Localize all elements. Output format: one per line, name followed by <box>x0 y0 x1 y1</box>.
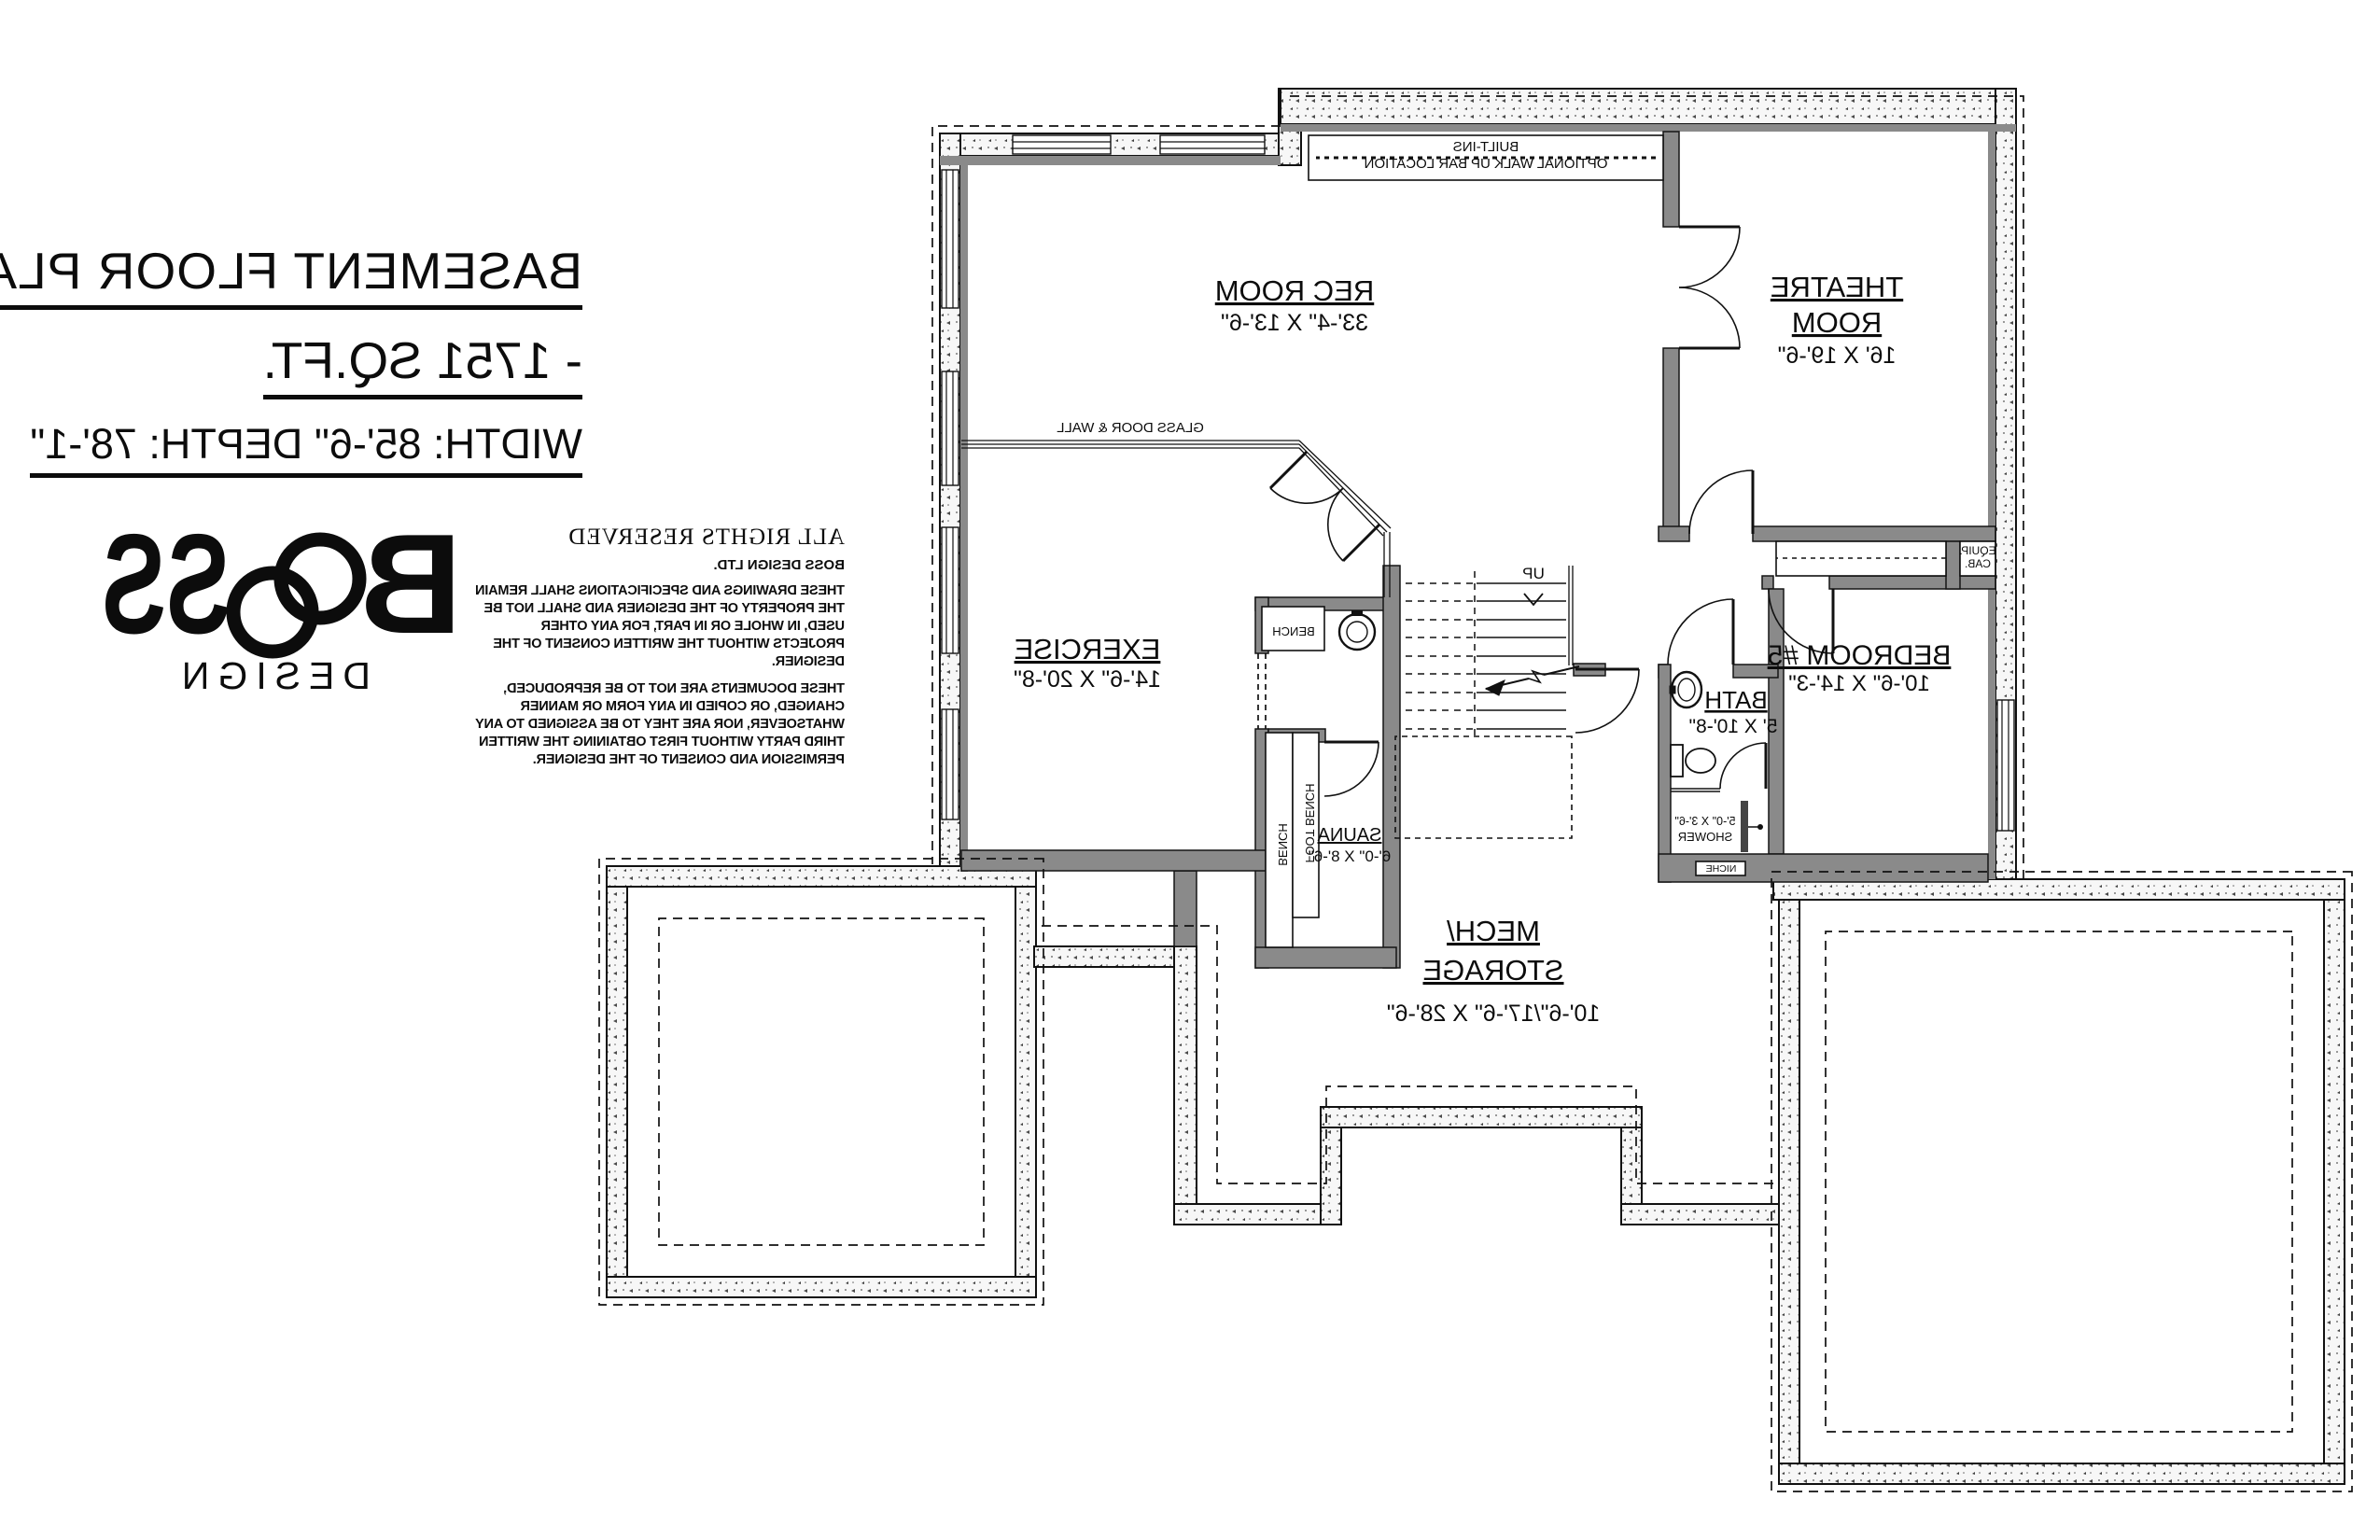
label-built-ins-2: OPTIONAL WALK UP BAR LOCATION <box>1365 156 1608 172</box>
label-built-ins-1: BUILT-INS <box>1453 139 1519 155</box>
label-equip-1: EQUIP. <box>1959 544 1995 557</box>
drawing-sheet: BASEMENT FLOOR PLAN - 1751 SQ.FT. WIDTH:… <box>0 0 2380 1540</box>
room-dims-theatre: 16' X 19'-6" <box>1778 343 1897 369</box>
stairs <box>1395 566 1579 838</box>
room-dims-rec: 33'-4" X 13'-6" <box>1221 310 1368 336</box>
room-dims-exercise: 14'-6" X 20'-8" <box>1014 666 1161 693</box>
label-equip-2: CAB. <box>1965 557 1991 570</box>
exterior-wall-faces <box>940 124 2016 879</box>
label-bench-vestibule: BENCH <box>1272 624 1315 638</box>
label-bench-sauna: BENCH <box>1276 823 1290 866</box>
room-label-bedroom5: BEDROOM #5 <box>1768 640 1952 671</box>
exterior-walls <box>607 89 2345 1484</box>
room-dims-bath: 5' X 10'-8" <box>1689 716 1778 737</box>
room-label-sauna: SAUNA <box>1317 825 1382 846</box>
glass-wall <box>961 441 1391 597</box>
room-label-exercise: EXERCISE <box>1015 633 1161 665</box>
room-dims-bedroom5: 10'-6" X 14'-3" <box>1788 671 1930 696</box>
room-dims-sauna: 6'-0" X 8'-6" <box>1309 847 1392 865</box>
room-label-mech-1: MECH/ <box>1447 915 1540 947</box>
floor-plan-svg: REC ROOM 33'-4" X 13'-6" THEATRE ROOM 16… <box>0 0 2380 1540</box>
windows <box>942 135 2014 831</box>
label-up: UP <box>1522 565 1545 582</box>
room-label-theatre-2: ROOM <box>1792 306 1882 339</box>
mirrored-sheet: BASEMENT FLOOR PLAN - 1751 SQ.FT. WIDTH:… <box>0 0 2380 1540</box>
label-shower-dims: 5'-0" X 3'-6" <box>1674 815 1735 828</box>
room-label-bath: BATH <box>1704 686 1767 714</box>
room-label-mech-2: STORAGE <box>1422 954 1563 987</box>
room-dims-mech: 10'-6"/17'-6" X 28'-6" <box>1387 1001 1601 1027</box>
label-shower: SHOWER <box>1678 830 1733 844</box>
label-glass-door-wall: GLASS DOOR & WALL <box>1057 420 1204 436</box>
room-label-theatre-1: THEATRE <box>1771 271 1903 303</box>
label-foot-bench: FOOT BENCH <box>1303 784 1317 863</box>
room-label-rec: REC ROOM <box>1215 274 1375 307</box>
label-niche: NICHE <box>1706 863 1737 875</box>
